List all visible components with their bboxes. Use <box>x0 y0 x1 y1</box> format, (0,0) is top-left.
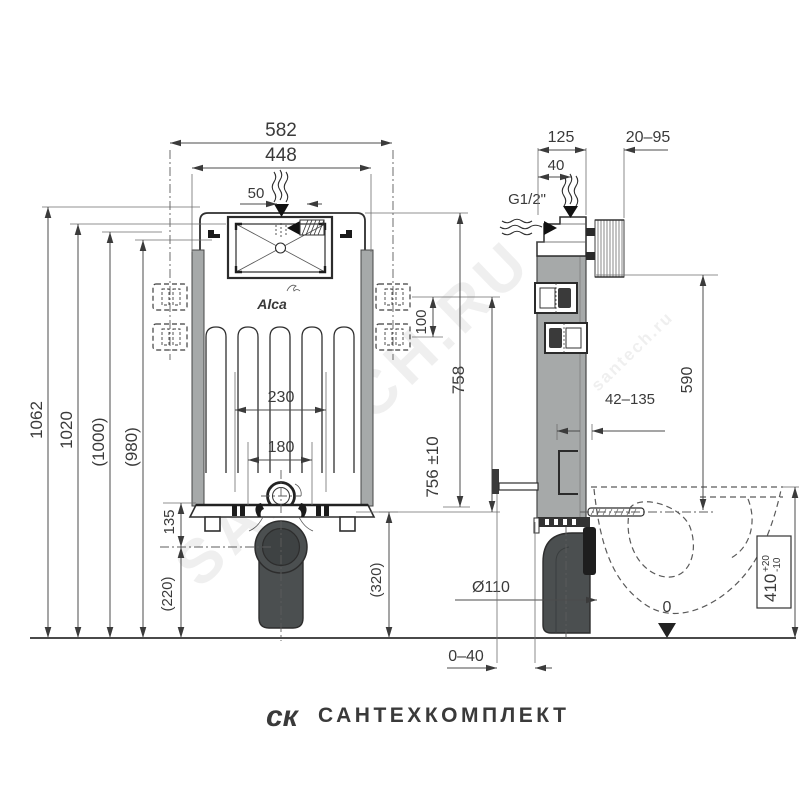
dim-100: 100 <box>413 309 430 334</box>
alca-logo: Alca <box>256 296 287 312</box>
frame-base <box>190 505 374 517</box>
dim-42135: 42–135 <box>605 391 655 408</box>
dim-40: 40 <box>548 157 565 174</box>
zero-level-label: 0 <box>663 599 672 616</box>
frame-leg-right <box>340 517 355 531</box>
dim-448: 448 <box>265 145 297 166</box>
dim-756: 756 ±10 <box>423 436 442 497</box>
dim-1020: 1020 <box>57 411 76 449</box>
dim-980: (980) <box>122 427 141 467</box>
toilet-outline <box>591 487 783 613</box>
mount-box-upper <box>535 283 577 313</box>
dim-410: 410 +20 -10 <box>761 555 783 602</box>
dim-582: 582 <box>265 120 297 141</box>
technical-drawing: SANTECH.RU santech.ru ск САНТЕХКОМПЛЕКТ <box>0 0 800 800</box>
dim-125: 125 <box>548 129 575 146</box>
side-dimensions: 125 20–95 40 42–135 590 Ø110 0–40 0 410 <box>447 129 799 668</box>
dim-590: 590 <box>679 367 696 394</box>
dim-180: 180 <box>268 439 295 456</box>
bottom-watermark-logo: ск <box>266 700 300 733</box>
dim-2095: 20–95 <box>626 129 671 146</box>
inlet-symbol <box>500 219 542 235</box>
dim-135: 135 <box>161 509 178 534</box>
dim-410-minus: -10 <box>772 557 783 572</box>
bottom-watermark-name: САНТЕХКОМПЛЕКТ <box>318 704 569 727</box>
drain-elbow-side <box>543 527 596 633</box>
mount-box-lower <box>545 323 587 353</box>
support-bracket <box>492 469 499 494</box>
dim-g12: G1/2" <box>508 191 546 208</box>
dim-1062: 1062 <box>27 401 46 439</box>
dim-230: 230 <box>268 389 295 406</box>
frame-leg-left <box>205 517 220 531</box>
dim-758: 758 <box>449 366 468 394</box>
dim-320: (320) <box>368 562 385 597</box>
svg-text:410: 410 <box>761 574 780 602</box>
dim-220: (220) <box>159 576 176 611</box>
supply-symbol-side <box>562 174 578 206</box>
dim-040: 0–40 <box>448 648 484 665</box>
frame-rail-left <box>192 250 204 506</box>
dim-50: 50 <box>248 185 265 202</box>
dim-410-plus: +20 <box>761 555 772 572</box>
dim-1000: (1000) <box>89 417 108 466</box>
diagonal-watermark-small: santech.ru <box>588 308 677 395</box>
water-supply-symbol <box>272 170 288 202</box>
wall-section <box>595 220 624 277</box>
window-center-hole <box>276 243 286 253</box>
zero-level-icon <box>658 623 676 638</box>
dim-dia110: Ø110 <box>472 579 510 596</box>
frame-rail-right <box>361 250 373 506</box>
drawing-canvas: SANTECH.RU santech.ru ск САНТЕХКОМПЛЕКТ <box>0 0 800 800</box>
